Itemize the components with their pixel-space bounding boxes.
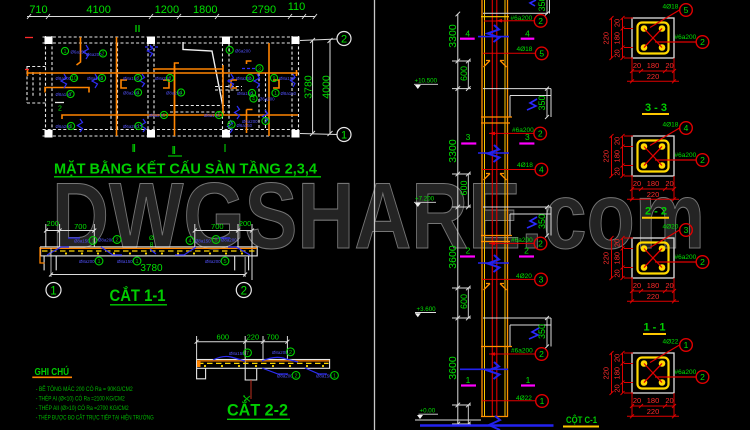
svg-text:110: 110 xyxy=(288,1,306,13)
svg-text:7: 7 xyxy=(246,351,249,357)
svg-text:4Ø18: 4Ø18 xyxy=(517,46,533,53)
svg-text:1: 1 xyxy=(97,259,100,265)
svg-text:Ø8a200: Ø8a200 xyxy=(221,238,237,243)
svg-text:4Ø18: 4Ø18 xyxy=(663,4,679,11)
svg-text:5: 5 xyxy=(684,5,689,15)
svg-text:CỘT C-1: CỘT C-1 xyxy=(566,414,598,426)
svg-text:8: 8 xyxy=(150,242,154,249)
svg-text:+0.00: +0.00 xyxy=(420,408,436,415)
svg-text:2: 2 xyxy=(538,129,543,139)
svg-text:Ø8a150: Ø8a150 xyxy=(195,239,211,244)
svg-text:4Ø18: 4Ø18 xyxy=(517,162,533,169)
svg-text:+3.600: +3.600 xyxy=(417,306,437,313)
svg-text:700: 700 xyxy=(211,222,224,231)
svg-text:350: 350 xyxy=(537,324,547,339)
svg-text:Ø8a200: Ø8a200 xyxy=(79,259,95,264)
svg-text:2: 2 xyxy=(538,239,543,249)
svg-text:#6a200: #6a200 xyxy=(675,34,697,41)
svg-text:3 - 3: 3 - 3 xyxy=(645,102,667,114)
svg-text:1: 1 xyxy=(684,340,689,350)
svg-text:2: 2 xyxy=(700,257,705,267)
svg-text:1: 1 xyxy=(50,285,56,297)
svg-text:2: 2 xyxy=(700,155,705,165)
svg-text:Ø8a150: Ø8a150 xyxy=(117,259,133,264)
svg-text:Ø6a150: Ø6a150 xyxy=(71,50,87,55)
svg-text:1200: 1200 xyxy=(155,4,179,16)
svg-text:3: 3 xyxy=(539,275,544,285)
svg-text:1: 1 xyxy=(228,48,231,54)
svg-text:2: 2 xyxy=(294,374,297,380)
svg-text:1: 1 xyxy=(64,49,67,55)
svg-text:2: 2 xyxy=(538,16,543,26)
svg-text:700: 700 xyxy=(266,333,279,342)
svg-text:+10.500: +10.500 xyxy=(415,78,438,85)
svg-text:GHI CHÚ: GHI CHÚ xyxy=(35,366,70,378)
svg-text:Ø8a150: Ø8a150 xyxy=(229,351,245,356)
svg-text:#6a200: #6a200 xyxy=(675,254,697,261)
svg-text:Ø8a150: Ø8a150 xyxy=(74,239,90,244)
svg-text:4: 4 xyxy=(539,165,544,175)
svg-text:10: 10 xyxy=(71,76,77,82)
svg-text:6: 6 xyxy=(264,119,267,125)
svg-text:220: 220 xyxy=(247,333,260,342)
svg-text:#6a200: #6a200 xyxy=(511,348,533,355)
svg-text:4Ø20: 4Ø20 xyxy=(663,224,679,231)
svg-text:3: 3 xyxy=(525,132,530,142)
svg-text:1: 1 xyxy=(91,239,94,245)
svg-text:2: 2 xyxy=(466,246,471,256)
svg-text:5: 5 xyxy=(539,49,544,59)
svg-text:2: 2 xyxy=(524,246,529,256)
svg-text:5: 5 xyxy=(223,259,226,265)
svg-text:3780: 3780 xyxy=(140,263,163,274)
svg-text:1: 1 xyxy=(540,396,545,406)
svg-text:350: 350 xyxy=(537,214,547,229)
svg-text:Ø8a150: Ø8a150 xyxy=(279,76,295,81)
svg-text:- BÊ TÔNG MÁC 200 CÓ Ra = 90KG: - BÊ TÔNG MÁC 200 CÓ Ra = 90KG/CM2 xyxy=(36,385,134,393)
svg-text:3: 3 xyxy=(466,132,471,142)
svg-text:5: 5 xyxy=(214,238,217,244)
svg-text:2 - 2: 2 - 2 xyxy=(645,206,667,218)
svg-text:2: 2 xyxy=(539,349,544,359)
svg-text:3780: 3780 xyxy=(303,75,315,99)
svg-text:MẶT BẰNG KẾT CẤU SÀN TẦNG 2,3,: MẶT BẰNG KẾT CẤU SÀN TẦNG 2,3,4 xyxy=(54,160,318,178)
svg-text:200: 200 xyxy=(239,219,252,228)
svg-text:2: 2 xyxy=(241,285,247,297)
svg-text:2: 2 xyxy=(115,238,118,244)
svg-text:3: 3 xyxy=(258,67,261,73)
svg-text:4: 4 xyxy=(252,97,255,103)
svg-text:600: 600 xyxy=(459,180,469,195)
svg-text:600: 600 xyxy=(217,333,230,342)
svg-text:Ø8a200: Ø8a200 xyxy=(277,374,293,379)
svg-text:7: 7 xyxy=(137,76,140,82)
svg-text:5: 5 xyxy=(230,123,233,129)
svg-text:2: 2 xyxy=(102,52,105,58)
svg-text:7: 7 xyxy=(69,92,72,98)
svg-text:1: 1 xyxy=(249,76,252,82)
svg-text:4: 4 xyxy=(137,91,140,97)
svg-text:3300: 3300 xyxy=(447,139,459,163)
svg-text:1: 1 xyxy=(137,124,140,130)
svg-text:4: 4 xyxy=(465,28,470,38)
svg-text:600: 600 xyxy=(459,66,469,81)
svg-text:4100: 4100 xyxy=(86,4,110,16)
svg-text:200: 200 xyxy=(46,219,59,228)
svg-text:4: 4 xyxy=(180,91,183,97)
svg-text:#6a200: #6a200 xyxy=(675,369,697,376)
svg-text:Ø6a150: Ø6a150 xyxy=(237,123,253,128)
svg-text:- THÉP ĐƯỢC ĐO CẮT TRỰC TIẾP T: - THÉP ĐƯỢC ĐO CẮT TRỰC TIẾP TẠI HIỆN TR… xyxy=(36,414,154,422)
svg-text:600: 600 xyxy=(459,294,469,309)
svg-text:+7.200: +7.200 xyxy=(415,196,435,203)
svg-text:Ø8a200: Ø8a200 xyxy=(272,350,288,355)
svg-text:8: 8 xyxy=(101,76,104,82)
svg-text:4: 4 xyxy=(525,28,530,38)
svg-text:Ø6a200: Ø6a200 xyxy=(235,49,251,54)
svg-text:9: 9 xyxy=(273,76,276,82)
svg-text:1: 1 xyxy=(341,130,347,142)
svg-text:1 - 1: 1 - 1 xyxy=(643,322,665,334)
svg-text:4: 4 xyxy=(684,123,689,133)
svg-text:1800: 1800 xyxy=(193,4,217,16)
svg-text:3300: 3300 xyxy=(447,24,459,48)
svg-text:4000: 4000 xyxy=(321,75,333,99)
svg-text:350: 350 xyxy=(537,95,547,110)
svg-text:CẮT 1-1: CẮT 1-1 xyxy=(110,286,166,305)
svg-text:2: 2 xyxy=(700,372,705,382)
svg-text:1: 1 xyxy=(466,375,471,385)
svg-text:- THÉP AII (Ø>10) CÓ Ra =2700: - THÉP AII (Ø>10) CÓ Ra =2700 KG/CM2 xyxy=(36,405,130,412)
svg-text:710: 710 xyxy=(29,4,47,16)
svg-text:1: 1 xyxy=(135,259,138,265)
svg-text:2790: 2790 xyxy=(252,4,276,16)
svg-text:2: 2 xyxy=(341,34,347,46)
svg-text:2: 2 xyxy=(169,76,172,82)
svg-text:Ø8a150: Ø8a150 xyxy=(316,374,332,379)
svg-text:350: 350 xyxy=(537,0,547,12)
svg-text:Ø8a150: Ø8a150 xyxy=(281,91,297,96)
svg-text:#6a200: #6a200 xyxy=(675,152,697,159)
svg-text:4: 4 xyxy=(188,239,191,245)
svg-text:1: 1 xyxy=(333,374,336,380)
svg-text:4Ø22: 4Ø22 xyxy=(663,339,679,346)
svg-text:1: 1 xyxy=(163,113,166,119)
svg-text:Ø8a200: Ø8a200 xyxy=(56,76,72,81)
svg-text:3: 3 xyxy=(684,225,689,235)
svg-text:3600: 3600 xyxy=(447,245,459,269)
svg-text:Ø6a200: Ø6a200 xyxy=(259,97,275,102)
svg-text:700: 700 xyxy=(74,222,87,231)
svg-text:CẮT 2-2: CẮT 2-2 xyxy=(227,401,288,420)
svg-text:1: 1 xyxy=(526,375,531,385)
svg-text:2: 2 xyxy=(289,350,292,356)
svg-text:9: 9 xyxy=(70,124,73,130)
svg-text:Ø8a200: Ø8a200 xyxy=(205,259,221,264)
svg-text:- THÉP AI (Ø<10) CÓ Ra =2100 K: - THÉP AI (Ø<10) CÓ Ra =2100 KG/CM2 xyxy=(36,396,126,403)
svg-text:1: 1 xyxy=(218,113,221,119)
svg-text:3600: 3600 xyxy=(447,356,459,380)
svg-text:2: 2 xyxy=(58,106,62,113)
svg-text:Ø8a200: Ø8a200 xyxy=(98,238,114,243)
svg-text:4Ø18: 4Ø18 xyxy=(663,122,679,129)
svg-text:2: 2 xyxy=(700,37,705,47)
